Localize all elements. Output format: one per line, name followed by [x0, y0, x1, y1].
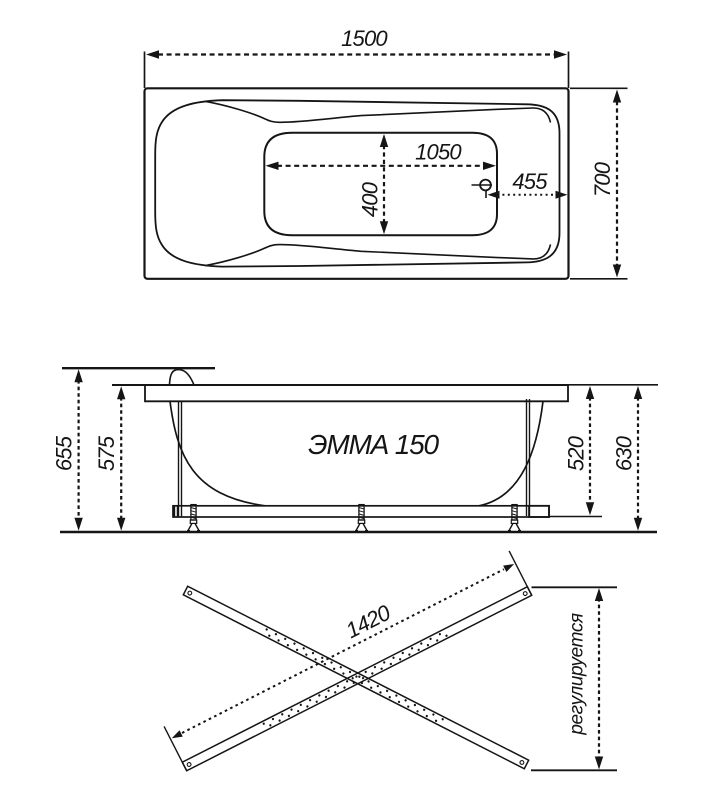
svg-text:700: 700	[590, 161, 615, 197]
svg-text:630: 630	[612, 435, 637, 471]
svg-text:455: 455	[512, 169, 548, 194]
svg-text:1500: 1500	[341, 26, 388, 51]
svg-text:400: 400	[358, 181, 383, 217]
svg-text:520: 520	[564, 435, 589, 471]
svg-text:655: 655	[52, 435, 77, 471]
svg-text:ЭММА 150: ЭММА 150	[308, 429, 439, 460]
svg-text:575: 575	[94, 435, 119, 471]
svg-text:регулируется: регулируется	[567, 613, 588, 736]
svg-text:1050: 1050	[415, 140, 462, 165]
